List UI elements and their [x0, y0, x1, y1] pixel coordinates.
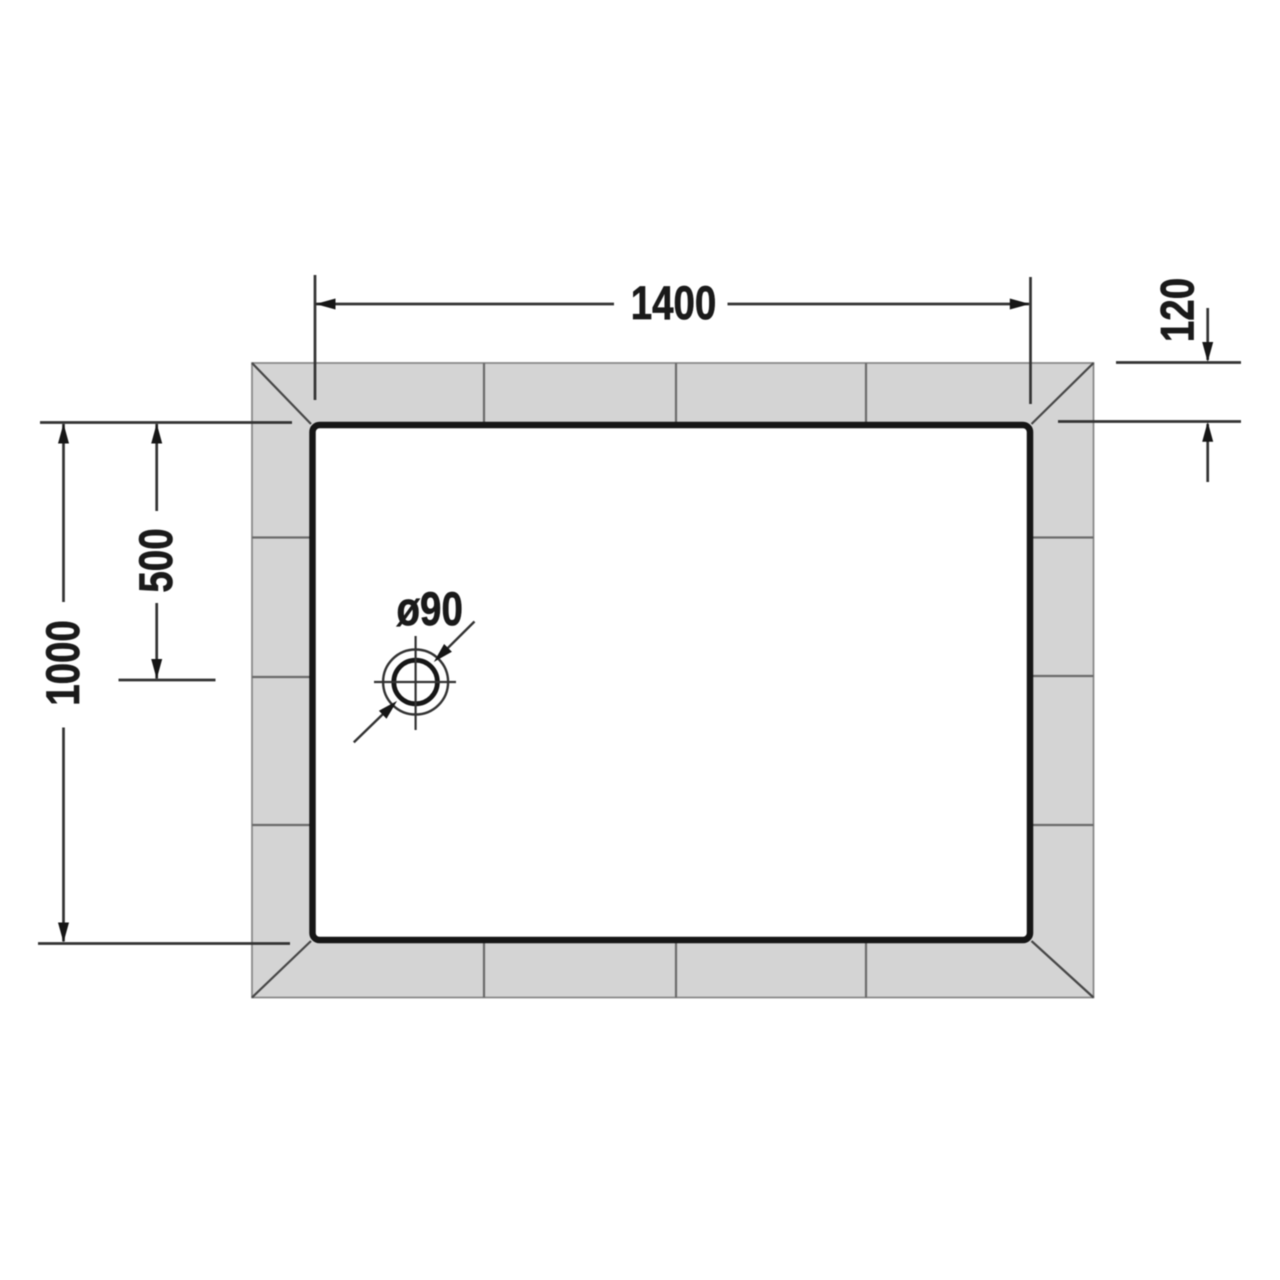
svg-text:1400: 1400 [631, 277, 717, 330]
svg-text:120: 120 [1152, 278, 1205, 342]
svg-text:1000: 1000 [37, 620, 90, 706]
svg-text:500: 500 [130, 528, 183, 592]
svg-text:ø90: ø90 [397, 583, 463, 636]
